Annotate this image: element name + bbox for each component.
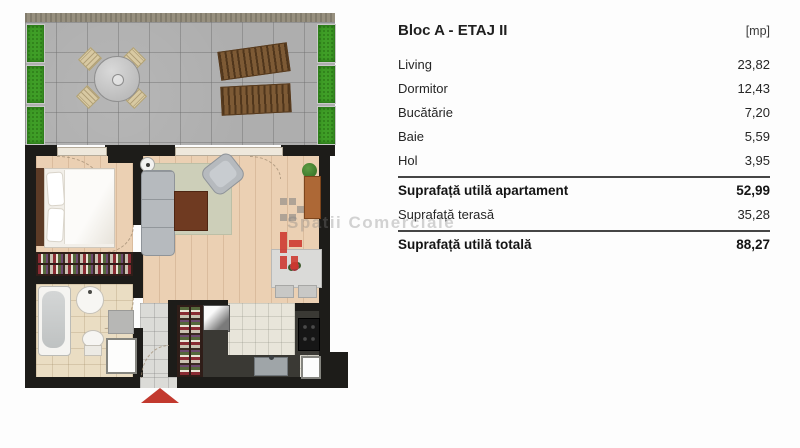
planter-left-2	[26, 65, 45, 104]
watermark-text: Spatii Comerciale	[287, 213, 455, 233]
wall-hall-kitchen	[168, 300, 177, 377]
planter-right-1	[317, 24, 336, 63]
sofa	[141, 170, 175, 256]
room-row-hol: Hol 3,95	[398, 148, 770, 172]
wall-pillar	[108, 145, 135, 163]
bed-duvet	[64, 170, 114, 244]
bath-cabinet	[106, 338, 137, 374]
summary-value: 52,99	[736, 183, 770, 198]
summary-label: Suprafață utilă totală	[398, 237, 532, 252]
wall-bottom-left	[25, 377, 140, 388]
room-row-baie: Baie 5,59	[398, 124, 770, 148]
room-row-dormitor: Dormitor 12,43	[398, 76, 770, 100]
planter-left-1	[26, 24, 45, 63]
wall-bedroom-bath	[36, 276, 133, 284]
room-value: 23,82	[737, 57, 770, 72]
room-value: 7,20	[745, 105, 770, 120]
table-header: Bloc A - ETAJ II [mp]	[398, 22, 770, 52]
wall-left	[25, 145, 36, 388]
sun-lounger-2	[220, 83, 291, 116]
bathtub-basin	[42, 291, 65, 348]
room-label: Baie	[398, 129, 424, 144]
planter-left-3	[26, 106, 45, 145]
kitchen-sink	[254, 357, 288, 376]
wall-bath-right-top	[133, 252, 143, 298]
summary-row-apartament: Suprafață utilă apartament 52,99	[398, 178, 770, 202]
room-value: 5,59	[745, 129, 770, 144]
wall-kitchen-top-right	[295, 303, 330, 311]
toilet-tank	[84, 345, 102, 356]
pillow-2	[46, 208, 65, 243]
dining-chair-1	[275, 285, 294, 298]
wardrobe-rail	[191, 307, 200, 375]
summary-label: Suprafață utilă apartament	[398, 183, 568, 198]
summary-value: 88,27	[736, 237, 770, 252]
room-row-bucatarie: Bucătărie 7,20	[398, 100, 770, 124]
room-row-living: Living 23,82	[398, 52, 770, 76]
entrance-arrow-icon	[141, 388, 179, 403]
pillow-1	[46, 171, 65, 206]
fridge	[203, 305, 230, 332]
bed-headboard	[36, 168, 44, 246]
floorplan-page: Spatii Comerciale Bloc A - ETAJ II [mp] …	[0, 0, 800, 448]
room-label: Hol	[398, 153, 418, 168]
planter-right-3	[317, 106, 336, 145]
washbasin	[76, 286, 104, 314]
pantry-wardrobe	[177, 305, 203, 377]
wardrobe-rail	[180, 307, 189, 375]
dining-chair-2	[298, 285, 317, 298]
room-value: 12,43	[737, 81, 770, 96]
unit-header: [mp]	[746, 24, 770, 38]
wall-bottom-right	[177, 377, 348, 388]
table-title: Bloc A - ETAJ II	[398, 22, 507, 39]
summary-row-totala: Suprafață utilă totală 88,27	[398, 232, 770, 256]
bedroom-terrace-door	[57, 147, 107, 156]
planter-right-2	[317, 65, 336, 104]
room-label: Bucătărie	[398, 105, 453, 120]
entrance-threshold	[140, 377, 177, 388]
bath-mat	[108, 310, 134, 334]
kitchen-cabinet	[301, 356, 321, 379]
summary-value: 35,28	[737, 207, 770, 222]
coffee-table	[174, 191, 208, 231]
bedroom-wardrobe	[36, 252, 133, 276]
kitchen-counter-left	[203, 330, 228, 377]
room-label: Dormitor	[398, 81, 448, 96]
room-value: 3,95	[745, 153, 770, 168]
terrace-edge-gravel	[25, 13, 335, 22]
terrace-round-table	[94, 56, 140, 102]
stove	[298, 318, 320, 351]
wardrobe-rail	[38, 265, 131, 274]
wardrobe-rail	[38, 254, 131, 263]
room-label: Living	[398, 57, 432, 72]
